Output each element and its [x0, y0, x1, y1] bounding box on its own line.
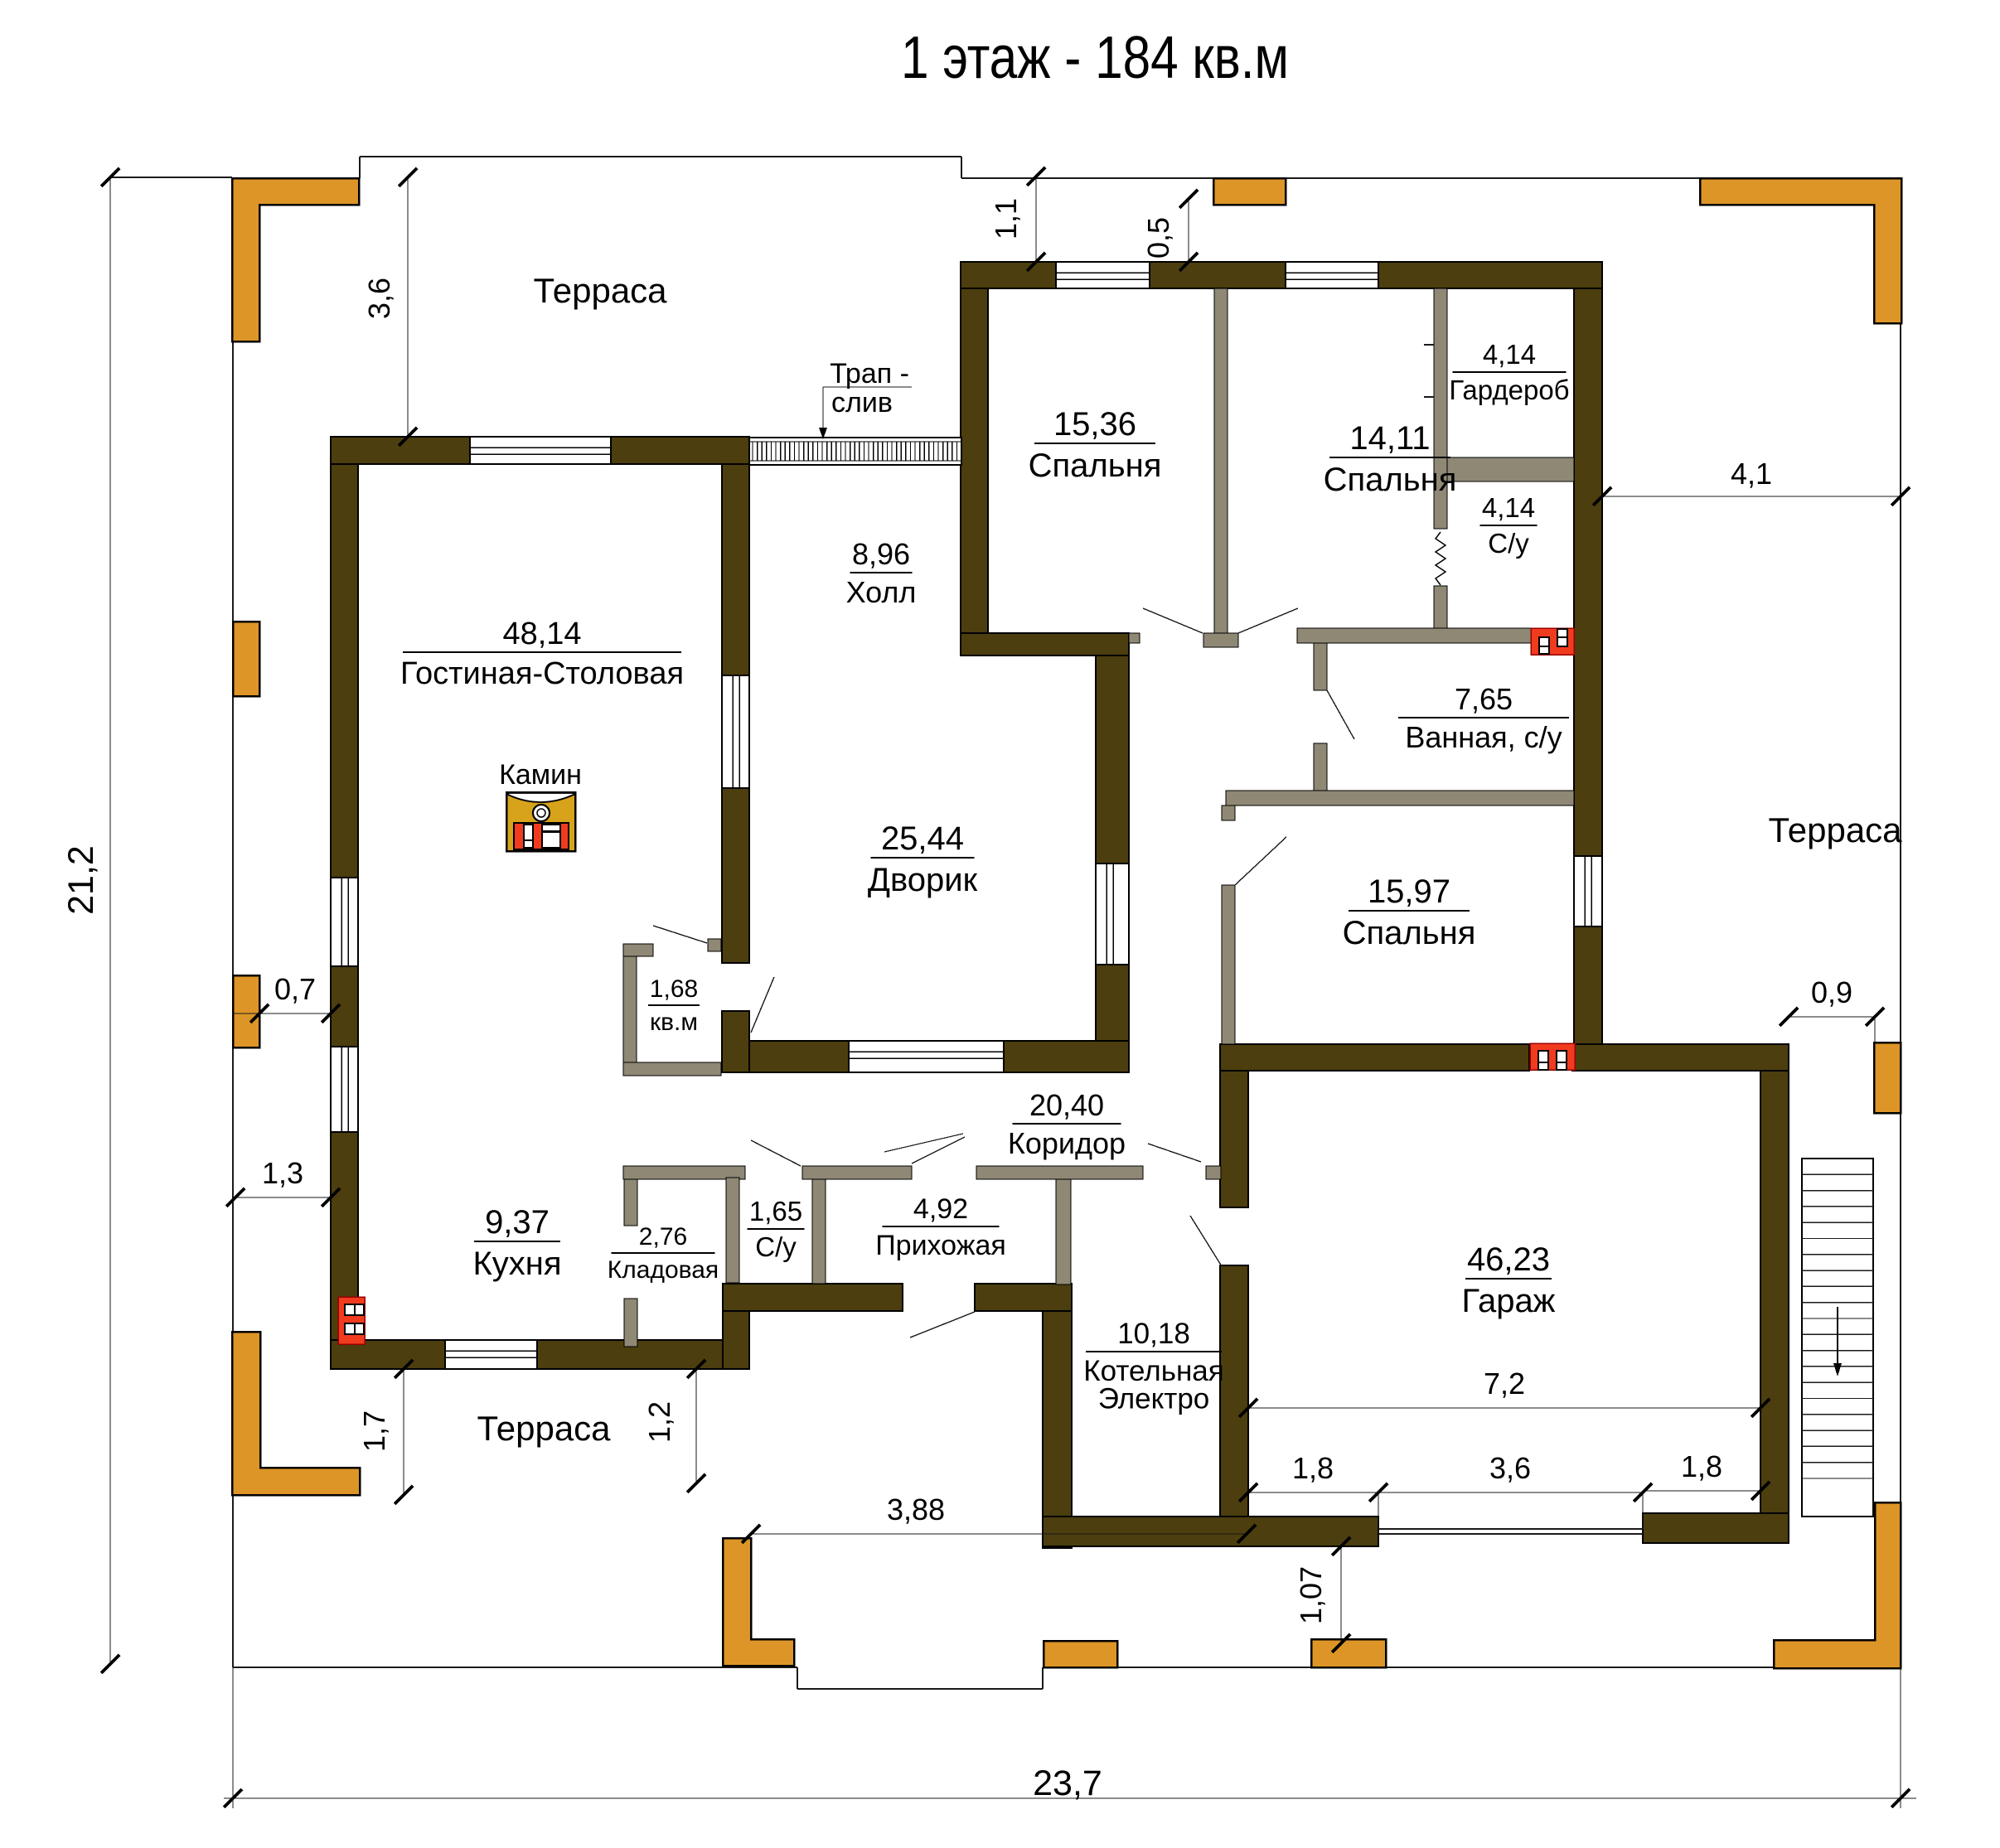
svg-text:9,37: 9,37	[485, 1204, 550, 1241]
svg-text:4,14: 4,14	[1483, 339, 1536, 370]
svg-text:Холл: Холл	[846, 575, 917, 609]
svg-text:3,6: 3,6	[362, 278, 396, 319]
svg-text:Терраса: Терраса	[533, 271, 667, 310]
svg-text:1,7: 1,7	[357, 1410, 391, 1452]
svg-text:10,18: 10,18	[1117, 1318, 1190, 1350]
svg-text:Трап -: Трап -	[830, 358, 909, 389]
svg-text:1,65: 1,65	[749, 1196, 802, 1226]
svg-text:7,65: 7,65	[1455, 682, 1513, 716]
svg-text:4,14: 4,14	[1482, 492, 1535, 523]
svg-text:Камин: Камин	[499, 759, 582, 791]
svg-text:15,36: 15,36	[1053, 406, 1136, 443]
svg-text:0,7: 0,7	[274, 972, 316, 1006]
svg-text:21,2: 21,2	[61, 845, 101, 915]
svg-text:Коридор: Коридор	[1008, 1126, 1126, 1160]
svg-text:15,97: 15,97	[1368, 873, 1450, 910]
svg-text:14,11: 14,11	[1349, 420, 1430, 457]
svg-text:4,1: 4,1	[1731, 457, 1772, 491]
svg-text:Дворик: Дворик	[868, 862, 978, 898]
svg-text:Спальня: Спальня	[1324, 462, 1457, 498]
svg-text:20,40: 20,40	[1029, 1088, 1104, 1122]
svg-text:Гардероб: Гардероб	[1449, 375, 1569, 405]
svg-text:Кухня: Кухня	[472, 1246, 561, 1282]
svg-text:23,7: 23,7	[1033, 1763, 1102, 1803]
svg-text:2,76: 2,76	[639, 1223, 687, 1251]
svg-text:слив: слив	[831, 387, 893, 418]
svg-text:кв.м: кв.м	[650, 1009, 698, 1036]
svg-text:1,8: 1,8	[1292, 1451, 1334, 1485]
svg-text:0,9: 0,9	[1811, 975, 1852, 1009]
svg-text:4,92: 4,92	[913, 1193, 968, 1225]
svg-text:Электро: Электро	[1098, 1382, 1210, 1415]
svg-text:1,07: 1,07	[1294, 1566, 1328, 1624]
svg-text:8,96: 8,96	[852, 537, 910, 571]
svg-text:7,2: 7,2	[1484, 1367, 1525, 1401]
svg-text:25,44: 25,44	[881, 820, 964, 857]
svg-text:3,88: 3,88	[887, 1492, 945, 1526]
svg-text:Кладовая: Кладовая	[608, 1256, 719, 1284]
svg-text:Терраса: Терраса	[477, 1409, 611, 1448]
svg-text:1,1: 1,1	[989, 198, 1023, 239]
svg-text:1,8: 1,8	[1681, 1449, 1722, 1483]
svg-text:3,6: 3,6	[1489, 1451, 1531, 1485]
svg-text:46,23: 46,23	[1467, 1241, 1550, 1278]
svg-text:Ванная, с/у: Ванная, с/у	[1405, 720, 1562, 754]
svg-text:1,3: 1,3	[262, 1156, 303, 1190]
svg-text:С/у: С/у	[1488, 528, 1529, 559]
svg-text:Гостиная-Столовая: Гостиная-Столовая	[400, 656, 684, 691]
svg-text:1 этаж - 184 кв.м: 1 этаж - 184 кв.м	[901, 25, 1289, 91]
svg-text:Спальня: Спальня	[1029, 447, 1162, 484]
svg-text:1,68: 1,68	[650, 975, 698, 1003]
svg-text:48,14: 48,14	[502, 617, 581, 651]
svg-text:0,5: 0,5	[1141, 217, 1175, 259]
svg-text:Спальня: Спальня	[1343, 915, 1476, 951]
svg-text:Прихожая: Прихожая	[875, 1230, 1006, 1261]
svg-text:Терраса: Терраса	[1768, 810, 1902, 849]
svg-text:Гараж: Гараж	[1462, 1283, 1556, 1319]
svg-text:1,2: 1,2	[642, 1401, 676, 1443]
svg-text:С/у: С/у	[755, 1231, 797, 1262]
